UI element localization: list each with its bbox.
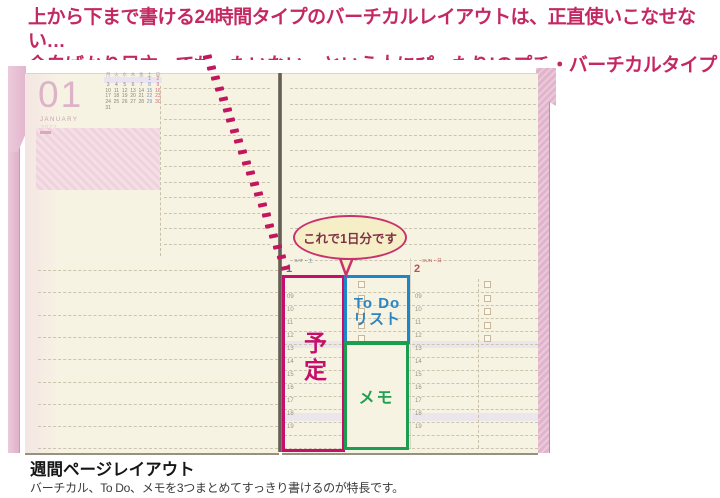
day2-time-grid: 0910111213141516171819	[412, 279, 538, 448]
memo-label: メモ	[358, 384, 394, 408]
day1-weekday: SAT・土	[294, 259, 313, 265]
month-name: JANUARY	[40, 117, 78, 123]
month-number: 01	[38, 74, 83, 116]
day1-number: 1	[286, 263, 292, 275]
caption-title: 週間ページレイアウト	[30, 456, 195, 480]
day2-weekday: SUN・日	[422, 259, 442, 265]
todo-highlight-box: To Do リスト	[344, 275, 410, 344]
schedule-label: 予定	[297, 331, 331, 385]
day2-row-lines	[412, 279, 538, 448]
mini-calendar: 月火水木金土日123456789101112131415161718192021…	[104, 72, 162, 112]
left-page-note-lines	[164, 86, 270, 258]
speech-bubble: これで1日分です	[293, 215, 407, 260]
promo-image: 上から下まで書ける24時間タイプのバーチカルレイアウトは、正直使いこなせない… …	[0, 0, 720, 498]
speech-bubble-text: これで1日分です	[303, 228, 397, 247]
headline-line1: 上から下まで書ける24時間タイプのバーチカルレイアウトは、正直使いこなせない…	[28, 6, 718, 54]
todo-label-line2: リスト	[353, 312, 401, 328]
monthly-memo-block	[36, 128, 160, 190]
caption-subtitle: バーチカル、To Do、メモを3つまとめてすっきり書けるのが特長です。	[30, 479, 404, 496]
left-page-bottom-lines	[38, 268, 278, 450]
planner-photo: 01 JANUARY 2022 月火水木金土日12345678910111213…	[8, 60, 556, 456]
day2-header: 2SUN・日	[414, 259, 442, 276]
day2-number: 2	[414, 263, 420, 275]
schedule-highlight-box: 予定	[282, 275, 345, 452]
day1-header: 1SAT・土	[286, 259, 313, 276]
memo-block-label-mark	[40, 131, 51, 134]
cover-edge-right	[536, 68, 550, 453]
todo-label-line1: To Do	[354, 296, 400, 312]
memo-highlight-box: メモ	[344, 342, 409, 450]
cover-tab-left	[8, 66, 26, 152]
day2-todo-divider	[478, 279, 479, 448]
left-page-divider	[160, 86, 161, 256]
